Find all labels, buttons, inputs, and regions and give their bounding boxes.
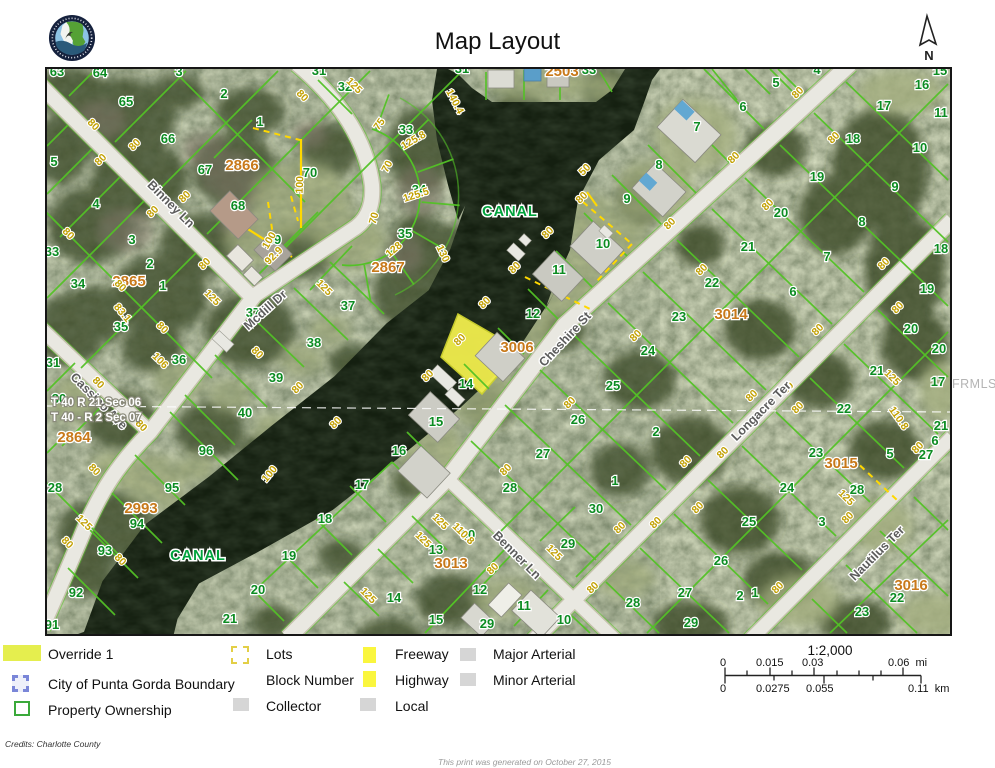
- svg-text:6: 6: [931, 433, 938, 448]
- svg-text:95: 95: [165, 480, 179, 495]
- svg-text:65: 65: [119, 94, 133, 109]
- svg-text:29: 29: [684, 615, 698, 630]
- svg-text:2: 2: [736, 588, 743, 603]
- svg-text:20: 20: [251, 582, 265, 597]
- svg-text:3: 3: [175, 69, 182, 79]
- svg-text:17: 17: [877, 98, 891, 113]
- svg-text:39: 39: [269, 370, 283, 385]
- svg-text:3014: 3014: [714, 306, 748, 323]
- svg-text:4: 4: [92, 196, 100, 211]
- svg-text:15: 15: [429, 414, 443, 429]
- svg-text:2: 2: [146, 256, 153, 271]
- svg-text:15: 15: [429, 612, 443, 627]
- svg-text:5: 5: [772, 75, 779, 90]
- svg-text:2: 2: [652, 424, 659, 439]
- svg-text:21: 21: [223, 611, 237, 626]
- svg-text:11: 11: [517, 598, 531, 613]
- svg-text:29: 29: [480, 616, 494, 631]
- svg-text:29: 29: [561, 536, 575, 551]
- svg-text:12: 12: [526, 306, 540, 321]
- svg-text:26: 26: [714, 553, 728, 568]
- svg-text:24: 24: [641, 343, 656, 358]
- svg-text:3015: 3015: [824, 455, 857, 472]
- svg-text:T 40 R 21 Sec 06: T 40 R 21 Sec 06: [51, 397, 141, 409]
- svg-text:16: 16: [392, 443, 406, 458]
- svg-text:17: 17: [931, 374, 945, 389]
- svg-text:19: 19: [282, 548, 296, 563]
- svg-text:2503: 2503: [545, 69, 578, 80]
- svg-text:23: 23: [855, 604, 869, 619]
- svg-text:38: 38: [307, 335, 321, 350]
- svg-text:24: 24: [780, 480, 795, 495]
- svg-text:6: 6: [739, 99, 746, 114]
- svg-text:23: 23: [809, 445, 823, 460]
- svg-text:31: 31: [47, 355, 60, 370]
- svg-text:1: 1: [751, 585, 758, 600]
- svg-text:19: 19: [810, 169, 824, 184]
- svg-text:20: 20: [904, 321, 918, 336]
- svg-text:22: 22: [705, 275, 719, 290]
- svg-text:22: 22: [837, 401, 851, 416]
- svg-text:23: 23: [672, 309, 686, 324]
- svg-text:6: 6: [789, 284, 796, 299]
- svg-text:17: 17: [355, 477, 369, 492]
- svg-text:N: N: [924, 48, 933, 63]
- svg-text:1: 1: [611, 473, 618, 488]
- svg-text:8: 8: [655, 157, 662, 172]
- svg-text:1: 1: [256, 114, 263, 129]
- svg-text:8: 8: [858, 214, 865, 229]
- svg-text:28: 28: [48, 480, 62, 495]
- svg-text:2864: 2864: [57, 429, 91, 446]
- svg-text:66: 66: [161, 131, 175, 146]
- svg-text:15: 15: [933, 69, 947, 78]
- svg-text:3: 3: [818, 514, 825, 529]
- svg-text:11: 11: [552, 262, 566, 277]
- svg-text:18: 18: [318, 511, 332, 526]
- svg-text:33: 33: [582, 69, 596, 77]
- svg-text:36: 36: [172, 352, 186, 367]
- svg-text:12: 12: [473, 582, 487, 597]
- svg-text:2866: 2866: [225, 157, 258, 174]
- svg-text:25: 25: [606, 378, 620, 393]
- svg-text:5: 5: [886, 446, 893, 461]
- svg-text:25: 25: [742, 514, 756, 529]
- svg-text:9: 9: [623, 191, 630, 206]
- svg-text:14: 14: [387, 590, 402, 605]
- svg-text:3: 3: [128, 232, 135, 247]
- svg-text:T 40 - R 2 Sec 07: T 40 - R 2 Sec 07: [51, 412, 142, 424]
- svg-text:68: 68: [231, 198, 245, 213]
- svg-text:2: 2: [220, 86, 227, 101]
- svg-text:94: 94: [130, 516, 145, 531]
- svg-text:10: 10: [557, 612, 571, 627]
- svg-text:10: 10: [913, 140, 927, 155]
- svg-text:21: 21: [934, 418, 948, 433]
- svg-text:33: 33: [47, 244, 59, 259]
- svg-text:100: 100: [294, 176, 307, 194]
- svg-text:93: 93: [98, 543, 112, 558]
- svg-text:18: 18: [846, 131, 860, 146]
- svg-text:CANAL: CANAL: [170, 548, 226, 564]
- svg-text:20: 20: [932, 341, 946, 356]
- svg-text:28: 28: [503, 480, 517, 495]
- svg-text:92: 92: [69, 585, 83, 600]
- svg-text:2867: 2867: [371, 259, 404, 276]
- svg-text:34: 34: [71, 276, 86, 291]
- svg-text:35: 35: [398, 226, 412, 241]
- svg-text:21: 21: [741, 239, 755, 254]
- svg-text:3006: 3006: [500, 339, 533, 356]
- svg-text:7: 7: [823, 249, 830, 264]
- svg-text:28: 28: [626, 595, 640, 610]
- svg-text:91: 91: [47, 617, 59, 632]
- svg-text:37: 37: [341, 298, 355, 313]
- svg-text:96: 96: [199, 443, 213, 458]
- svg-text:19: 19: [920, 281, 934, 296]
- svg-text:4: 4: [813, 69, 821, 77]
- svg-text:1: 1: [159, 278, 166, 293]
- svg-text:CANAL: CANAL: [482, 204, 538, 220]
- svg-text:40: 40: [238, 405, 252, 420]
- svg-text:2993: 2993: [124, 500, 157, 517]
- svg-text:20: 20: [774, 205, 788, 220]
- svg-text:30: 30: [589, 501, 603, 516]
- svg-text:5: 5: [50, 154, 57, 169]
- svg-text:67: 67: [198, 162, 212, 177]
- svg-text:18: 18: [934, 241, 948, 256]
- svg-text:64: 64: [93, 69, 108, 80]
- svg-text:11: 11: [934, 105, 948, 120]
- svg-text:63: 63: [50, 69, 64, 79]
- svg-text:9: 9: [891, 179, 898, 194]
- svg-text:10: 10: [596, 236, 610, 251]
- svg-text:14: 14: [459, 376, 474, 391]
- svg-text:27: 27: [536, 446, 550, 461]
- svg-text:16: 16: [915, 77, 929, 92]
- svg-text:27: 27: [678, 585, 692, 600]
- svg-text:3013: 3013: [434, 555, 467, 572]
- svg-text:31: 31: [455, 69, 469, 76]
- svg-text:31: 31: [312, 69, 326, 78]
- svg-text:7: 7: [693, 119, 700, 134]
- svg-text:3016: 3016: [894, 577, 927, 594]
- svg-text:26: 26: [571, 412, 585, 427]
